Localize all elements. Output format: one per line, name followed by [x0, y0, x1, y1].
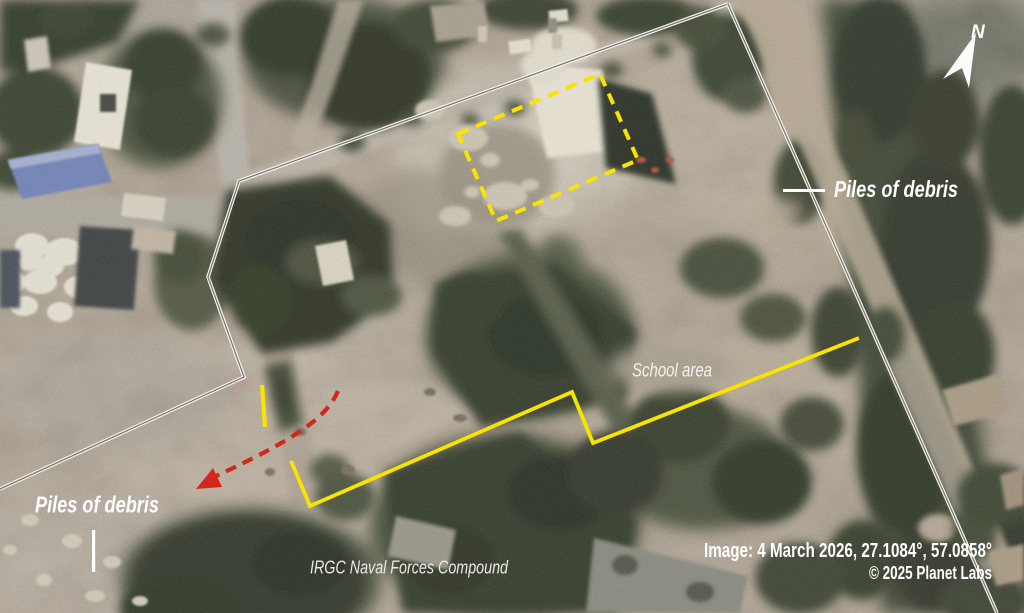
svg-text:Image: 4 March 2026, 27.1084°,: Image: 4 March 2026, 27.1084°, 57.0858°: [704, 540, 992, 562]
svg-text:IRGC Naval Forces Compound: IRGC Naval Forces Compound: [310, 558, 509, 578]
svg-text:Piles of debris: Piles of debris: [834, 176, 958, 202]
svg-text:© 2025 Planet Labs: © 2025 Planet Labs: [869, 562, 992, 583]
svg-text:N: N: [971, 22, 986, 43]
svg-text:School area: School area: [632, 361, 712, 382]
svg-text:Piles of debris: Piles of debris: [35, 492, 159, 518]
